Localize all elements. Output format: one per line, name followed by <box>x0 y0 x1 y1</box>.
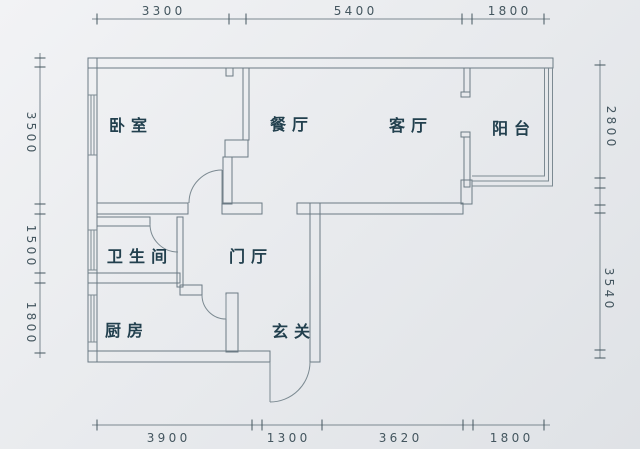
dim-right-2: 3540 <box>603 264 615 311</box>
dim-top-2: 5400 <box>330 5 377 17</box>
dim-bottom-4: 1800 <box>486 432 533 444</box>
wall-left <box>88 58 97 362</box>
floor-plan: 卧室 餐厅 客厅 阳台 卫生间 门厅 厨房 玄关 3300 5400 1800 … <box>0 0 640 449</box>
wall-bathroom-top <box>97 217 150 226</box>
windows <box>88 95 97 342</box>
wall-balcony-divider-upper <box>464 68 470 92</box>
doors <box>150 170 310 402</box>
wall-bedroom-bottom <box>97 203 188 214</box>
room-label-entry: 玄关 <box>266 324 316 340</box>
outer-walls <box>88 58 553 362</box>
wall-living-bottom <box>297 203 463 214</box>
dim-left-3: 1800 <box>25 298 37 345</box>
balcony-divider-stub-bottom <box>461 132 470 137</box>
dim-right-1: 2800 <box>605 102 617 149</box>
dim-bottom-2: 1300 <box>263 432 310 444</box>
wall-top <box>88 58 553 68</box>
floor-plan-drawing <box>0 0 640 449</box>
interior-walls <box>88 68 472 352</box>
dim-top-3: 1800 <box>484 5 531 17</box>
dim-left-2: 1500 <box>25 221 37 268</box>
wall-bottom <box>88 351 270 362</box>
bedroom-door-arc <box>189 170 222 203</box>
wall-hall-top <box>222 203 262 214</box>
kitchen-window <box>88 295 97 342</box>
entry-door-arc <box>270 362 310 402</box>
wall-bedroom-dining-pier <box>225 140 248 157</box>
dim-left-1: 3500 <box>25 108 37 155</box>
room-label-bathroom: 卫生间 <box>101 249 173 265</box>
room-label-balcony: 阳台 <box>486 121 536 137</box>
wall-bedroom-dining-upper <box>243 68 249 140</box>
dim-bottom-1: 3900 <box>143 432 190 444</box>
balcony-divider-stub-top <box>461 92 470 97</box>
dim-bottom-3: 3620 <box>375 432 422 444</box>
room-label-hall: 门厅 <box>223 249 273 265</box>
bedroom-window <box>88 95 97 155</box>
dim-top-1: 3300 <box>138 5 185 17</box>
wall-kitchen-right <box>226 293 238 352</box>
room-label-living: 客厅 <box>383 118 433 134</box>
room-label-dining: 餐厅 <box>264 117 314 133</box>
room-label-kitchen: 厨房 <box>99 323 149 339</box>
room-label-bedroom: 卧室 <box>103 118 153 134</box>
wall-bedroom-dining-lower <box>223 157 232 204</box>
wall-flue-stub <box>226 68 233 76</box>
kitchen-door-arc <box>202 295 226 319</box>
bathroom-window <box>88 230 97 270</box>
wall-kitchen-top-left <box>88 273 180 283</box>
